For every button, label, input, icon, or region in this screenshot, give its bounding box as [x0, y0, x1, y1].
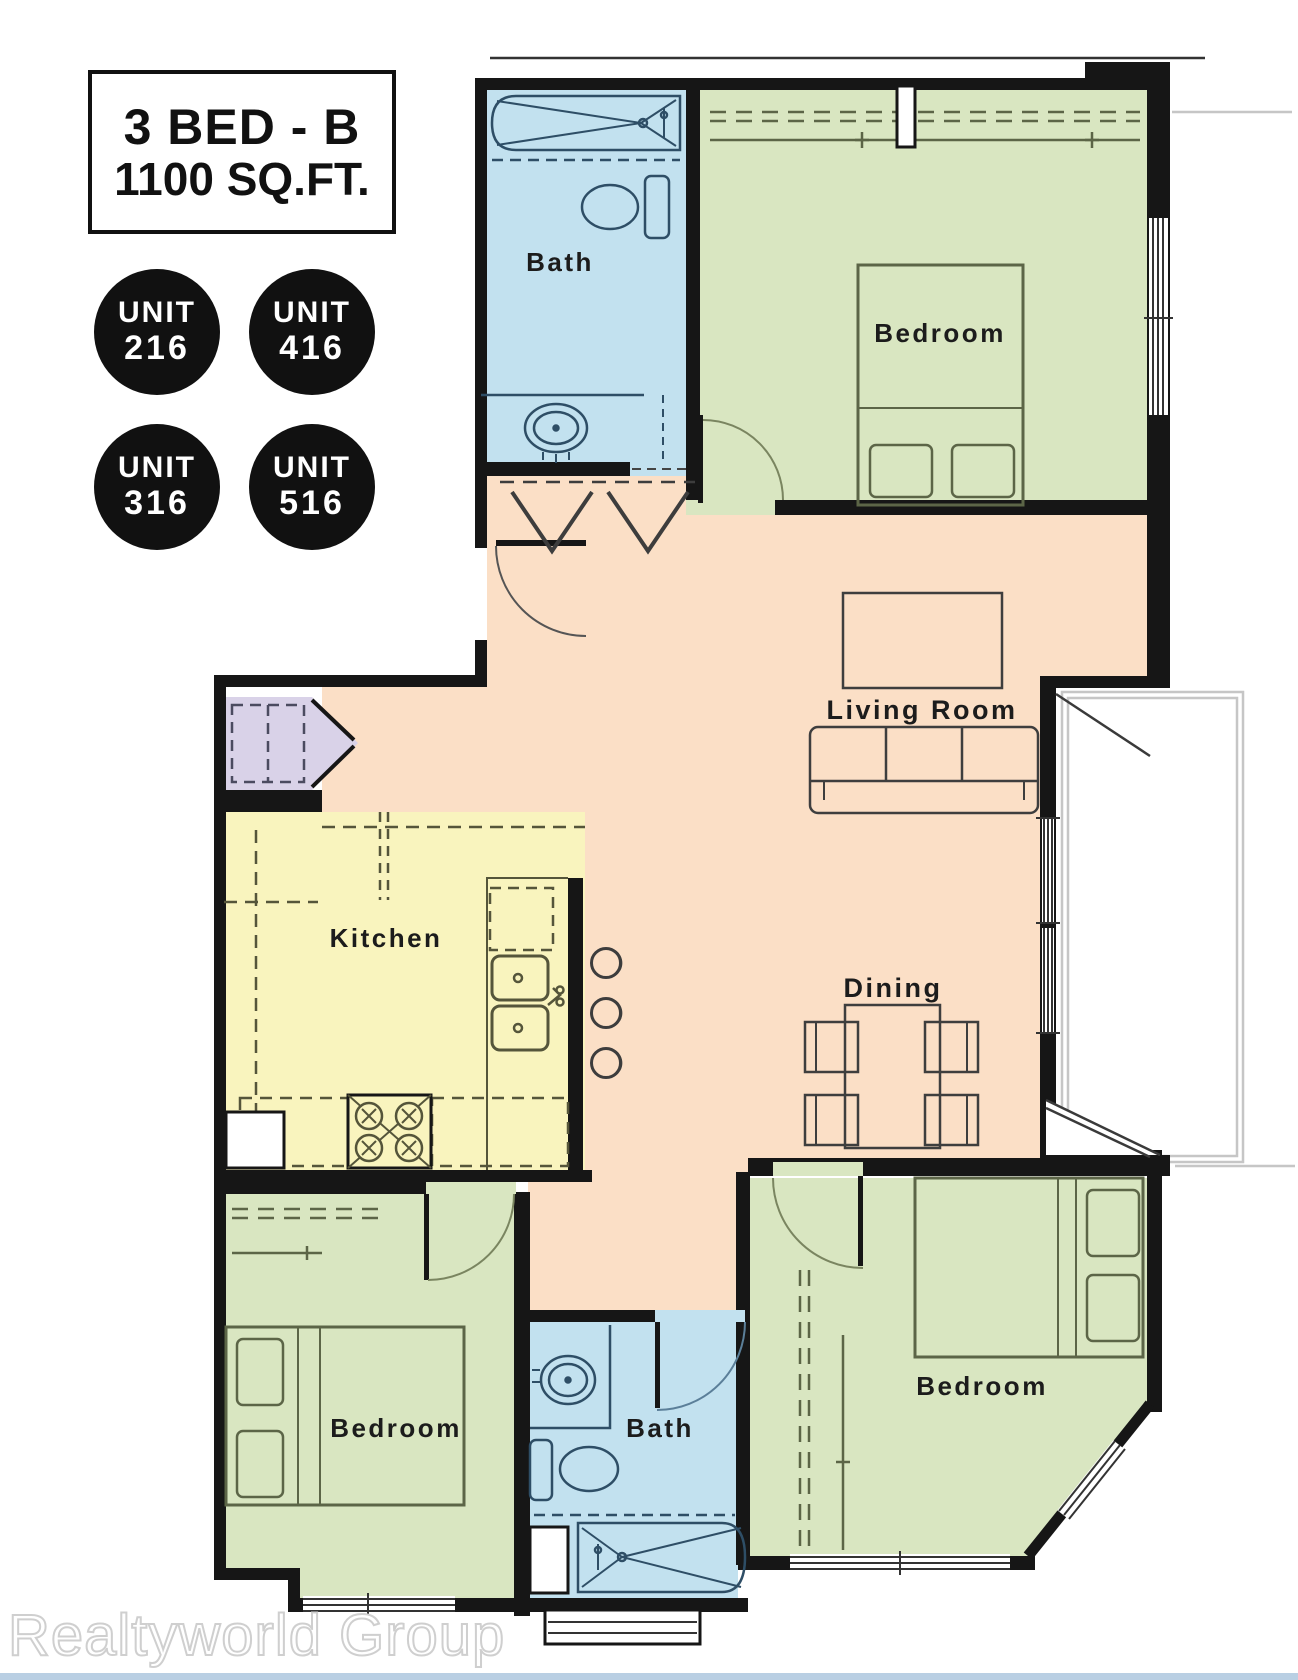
room-label-bath-bottom: Bath: [626, 1413, 694, 1443]
floor-plan-svg: Bath Bedroom Living Room Kitchen Dining …: [0, 0, 1298, 1680]
unit-badge-label: UNIT: [118, 452, 196, 484]
unit-badge-416: UNIT 416: [249, 269, 375, 395]
unit-badge-number: 316: [124, 485, 190, 522]
unit-badge-label: UNIT: [273, 297, 351, 329]
bedroom-top-door-leaf: [698, 415, 703, 503]
room-label-kitchen: Kitchen: [330, 923, 443, 953]
room-label-dining: Dining: [844, 973, 943, 1003]
room-label-bedroom-right: Bedroom: [916, 1371, 1048, 1401]
plan-title-line2: 1100 SQ.FT.: [114, 155, 370, 203]
plan-title-box: 3 BED - B 1100 SQ.FT.: [88, 70, 396, 234]
unit-badge-216: UNIT 216: [94, 269, 220, 395]
room-label-bedroom-left: Bedroom: [330, 1413, 462, 1443]
fridge: [226, 1112, 284, 1168]
room-label-bedroom-top: Bedroom: [874, 318, 1006, 348]
watermark-text: Realtyworld Group: [8, 1602, 505, 1669]
bedroom-top-floor: [686, 86, 1147, 515]
unit-badge-316: UNIT 316: [94, 424, 220, 550]
bedroom-right-door-leaf: [858, 1176, 863, 1266]
entry-door-leaf: [496, 540, 586, 546]
plan-title-line1: 3 BED - B: [124, 101, 361, 154]
unit-badge-label: UNIT: [118, 297, 196, 329]
balcony-outline-inner: [1068, 698, 1237, 1156]
balcony-outline-outer: [1062, 692, 1243, 1162]
room-label-bath-top: Bath: [526, 247, 594, 277]
bottom-strip: [0, 1673, 1298, 1680]
unit-badge-number: 416: [279, 330, 345, 367]
bath-bottom-door-leaf: [655, 1322, 660, 1408]
unit-badge-516: UNIT 516: [249, 424, 375, 550]
shower-block: [530, 1527, 568, 1593]
unit-badge-number: 216: [124, 330, 190, 367]
bedroom-left-floor: [226, 1182, 516, 1608]
window-bath-bottom-bay: [545, 1610, 700, 1644]
window-bedroom-right-south: [790, 1551, 1010, 1575]
floorplan-page: Bath Bedroom Living Room Kitchen Dining …: [0, 0, 1298, 1680]
unit-badge-label: UNIT: [273, 452, 351, 484]
room-label-living-room: Living Room: [827, 695, 1018, 725]
bedroom-left-door-leaf: [424, 1194, 429, 1280]
unit-badge-number: 516: [279, 485, 345, 522]
